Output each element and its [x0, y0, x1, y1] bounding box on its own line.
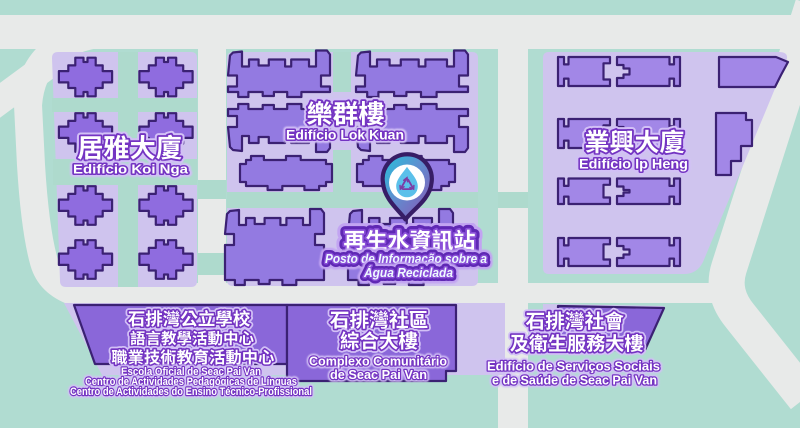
svg-text:Edifício Koi Nga: Edifício Koi Nga: [73, 162, 189, 177]
svg-text:Centro de Actividades do Ensin: Centro de Actividades do Ensino Técnico-…: [70, 386, 312, 398]
svg-text:Água Reciclada: Água Reciclada: [363, 265, 453, 280]
svg-text:Edifício de Serviços Sociais: Edifício de Serviços Sociais: [487, 360, 660, 374]
svg-text:e de Saúde de Seac Pai Van: e de Saúde de Seac Pai Van: [492, 374, 657, 388]
svg-text:Edifício Ip Heng: Edifício Ip Heng: [579, 157, 688, 172]
svg-text:de Seac Pai Van: de Seac Pai Van: [330, 367, 427, 382]
svg-text:Edifício Lok Kuan: Edifício Lok Kuan: [286, 128, 404, 143]
svg-text:Posto de Informação sobre a: Posto de Informação sobre a: [325, 252, 487, 266]
